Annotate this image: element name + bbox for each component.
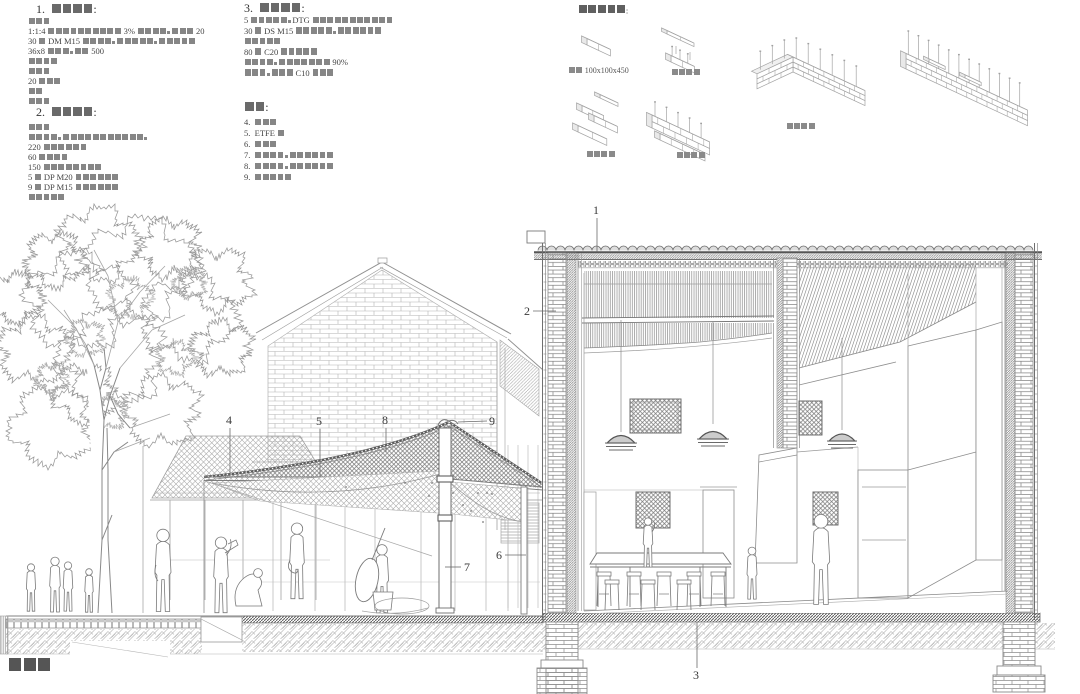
svg-text:8: 8 [382, 413, 388, 427]
svg-text:5: 5 [316, 414, 322, 428]
svg-text:3: 3 [693, 668, 699, 682]
svg-text:7: 7 [464, 560, 470, 574]
svg-text:2: 2 [524, 304, 530, 318]
svg-text:9: 9 [489, 414, 495, 428]
svg-text:4: 4 [226, 413, 232, 427]
svg-text:6: 6 [496, 548, 502, 562]
svg-text:1: 1 [593, 203, 599, 217]
